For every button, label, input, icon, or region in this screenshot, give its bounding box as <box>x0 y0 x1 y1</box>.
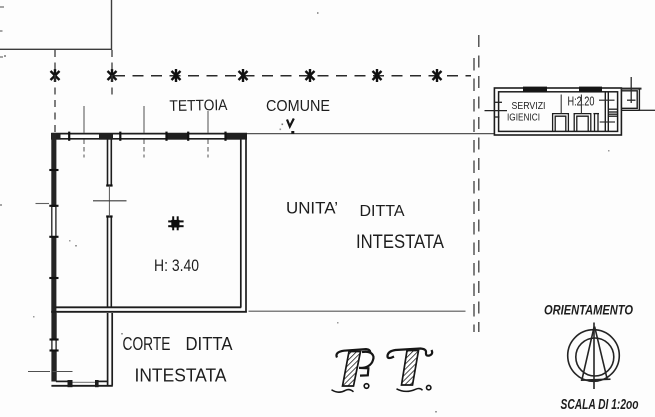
svg-text:INTESTATA: INTESTATA <box>356 232 444 253</box>
svg-text:INTESTATA: INTESTATA <box>135 366 227 386</box>
svg-text:SERVIZI: SERVIZI <box>512 100 546 112</box>
svg-text:UNITA’: UNITA’ <box>286 200 338 218</box>
svg-text:SCALA DI 1:2oo: SCALA DI 1:2oo <box>561 397 639 413</box>
svg-text:COMUNE: COMUNE <box>266 98 330 115</box>
svg-text:H:2.20: H:2.20 <box>568 95 595 109</box>
svg-text:DITTA: DITTA <box>360 203 405 220</box>
svg-text:H: 3.40: H: 3.40 <box>154 256 199 275</box>
svg-text:ORIENTAMENTO: ORIENTAMENTO <box>544 303 633 318</box>
svg-text:IGIENICI: IGIENICI <box>507 112 540 124</box>
svg-text:DITTA: DITTA <box>186 334 233 354</box>
svg-text:TETTOIA: TETTOIA <box>169 97 228 115</box>
svg-text:CORTE: CORTE <box>123 334 171 354</box>
